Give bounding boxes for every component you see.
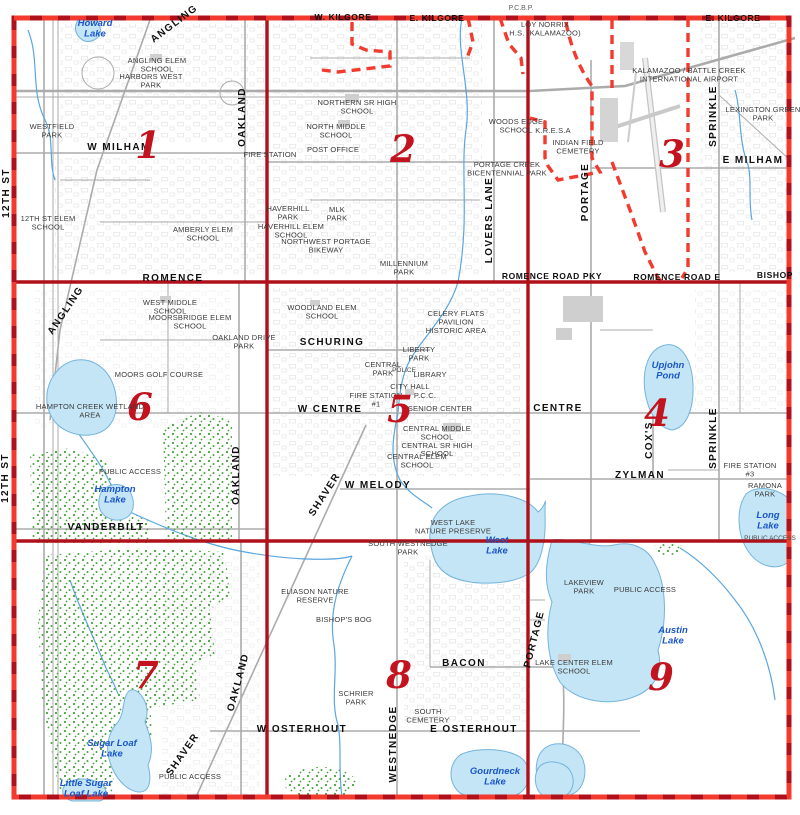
gourdneck-east-pond — [535, 762, 573, 798]
road-label-w-osterhout: W OSTERHOUT — [257, 724, 347, 735]
label-e-kilgore-mid: E. KILGORE — [409, 13, 464, 23]
road-label-sprinkle-3: SPRINKLE — [708, 85, 719, 147]
place-indian-field-cemetery: INDIAN FIELDCEMETERY — [552, 138, 604, 155]
place-public-access-9: PUBLIC ACCESS — [614, 585, 676, 594]
lake-label-long: LongLake — [756, 510, 779, 532]
road-label-lovers-lane: LOVERS LANE — [484, 177, 495, 264]
road-label-12th-st-6: 12TH ST — [0, 453, 11, 503]
place-bishops-bog: BISHOP'S BOG — [316, 615, 372, 624]
road-label-centre-4: CENTRE — [533, 403, 583, 414]
section-number-7[interactable]: 7 — [133, 653, 159, 697]
lake-label-little-sugar-loaf: Little SugarLoaf Lake — [60, 778, 114, 800]
place-public-access-7: PUBLIC ACCESS — [159, 772, 221, 781]
road-label-schuring: SCHURING — [300, 337, 365, 348]
road-label-w-centre: W CENTRE — [298, 404, 363, 415]
lake-label-west: WestLake — [486, 535, 509, 557]
road-label-zylman: ZYLMAN — [615, 470, 665, 481]
place-kresa: K.R.E.S.A — [535, 126, 571, 135]
lake-label-austin: AustinLake — [657, 625, 688, 647]
place-library: LIBRARY — [413, 370, 446, 379]
label-e-kilgore: E. KILGORE — [705, 13, 760, 23]
place-fire-station-border: FIRE STATION — [244, 150, 297, 159]
label-w-kilgore: W. KILGORE — [315, 12, 372, 22]
road-label-coxs: COX'S — [644, 421, 655, 459]
section-number-2[interactable]: 2 — [389, 127, 416, 171]
place-portage-creek-bicentennial: PORTAGE CREEKBICENTENNIAL PARK — [467, 160, 547, 177]
place-moors-golf: MOORS GOLF COURSE — [115, 370, 203, 379]
place-senior-center: SENIOR CENTER — [408, 404, 473, 413]
section-number-1[interactable]: 1 — [135, 123, 161, 167]
road-label-romence-road-pky: ROMENCE ROAD PKY — [502, 271, 602, 281]
portage-map-canvas: W. KILGOREE. KILGOREP.C.B.P.E. KILGORELO… — [0, 0, 800, 815]
road-label-westnedge: WESTNEDGE — [388, 705, 399, 782]
place-public-access-4: PUBLIC ACCESS — [744, 535, 796, 542]
place-pcc: P.C.C. — [414, 391, 436, 400]
road-label-romence-road-e: ROMENCE ROAD E — [633, 272, 720, 282]
lake-label-upjohn: UpjohnPond — [652, 360, 685, 382]
road-label-oakland-6: OAKLAND — [231, 445, 242, 505]
place-post-office: POST OFFICE — [307, 145, 359, 154]
austin-lake — [546, 540, 664, 702]
map-page: W. KILGOREE. KILGOREP.C.B.P.E. KILGORELO… — [0, 0, 800, 815]
road-label-vanderbilt: VANDERBILT — [68, 522, 145, 533]
place-mlk-park: MLKPARK — [327, 205, 348, 222]
road-label-w-melody: W MELODY — [345, 480, 411, 491]
road-label-12th-st-1: 12TH ST — [1, 168, 12, 218]
road-label-sprinkle-4: SPRINKLE — [708, 407, 719, 469]
place-airport: KALAMAZOO / BATTLE CREEKINTERNATIONAL AI… — [632, 66, 745, 83]
road-label-bacon: BACON — [442, 658, 486, 669]
road-label-romence: ROMENCE — [143, 273, 204, 284]
label-pcbp: P.C.B.P. — [508, 5, 533, 12]
road-label-oakland-1: OAKLAND — [237, 87, 248, 147]
road-label-portage-3: PORTAGE — [580, 163, 591, 222]
section-number-8[interactable]: 8 — [385, 653, 412, 697]
place-public-access-6: PUBLIC ACCESS — [99, 467, 161, 476]
road-label-e-osterhout: E OSTERHOUT — [430, 724, 518, 735]
road-label-e-milham: E MILHAM — [723, 155, 784, 166]
section-number-3[interactable]: 3 — [659, 132, 685, 176]
road-label-bishop: BISHOP — [757, 270, 793, 280]
section-number-9[interactable]: 9 — [648, 655, 674, 699]
